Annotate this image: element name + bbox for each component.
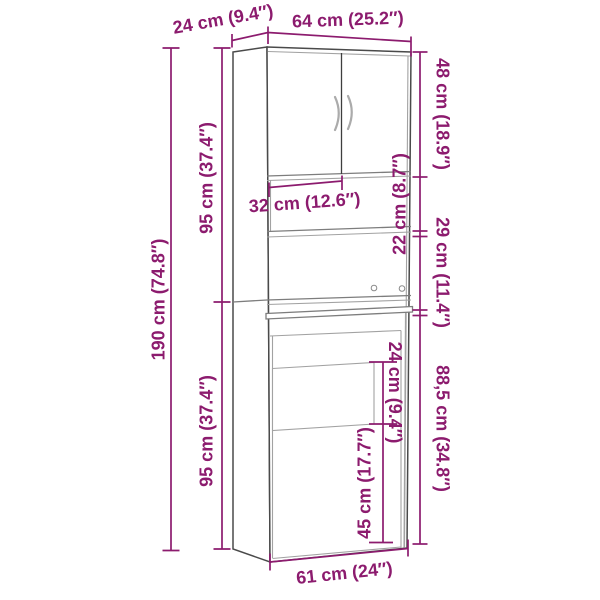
dim-label-depth: 24 cm (9.4″) xyxy=(171,0,275,37)
dim-label-middle-section: 29 cm (11.4″) xyxy=(433,217,453,328)
dim-label-total-width: 64 cm (25.2″) xyxy=(292,8,404,32)
cabinet-front-face xyxy=(267,47,411,562)
niche-back-rail xyxy=(273,363,375,431)
dimension-diagram-canvas: 24 cm (9.4″) 64 cm (25.2″) 48 cm (18.9″)… xyxy=(0,0,600,600)
dim-label-total-height: 190 cm (74.8″) xyxy=(149,239,169,361)
cabinet-drawing xyxy=(233,47,413,562)
dim-label-shelf-space: 22 cm (8.7″) xyxy=(390,153,410,255)
dim-label-top-section: 48 cm (18.9″) xyxy=(433,58,453,170)
dim-label-lower-height: 95 cm (37.4″) xyxy=(197,375,217,487)
cabinet-side-panel xyxy=(233,47,270,562)
dim-label-niche-lower: 45 cm (17.7″) xyxy=(355,427,375,539)
cabinet-dimension-diagram: 24 cm (9.4″) 64 cm (25.2″) 48 cm (18.9″)… xyxy=(0,0,600,600)
top-dimension-line xyxy=(232,33,411,42)
dim-label-niche-upper: 24 cm (9.4″) xyxy=(385,342,405,444)
dim-label-upper-height: 95 cm (37.4″) xyxy=(197,122,217,234)
dim-label-lower-section: 88,5 cm (34.8″) xyxy=(433,365,453,492)
dim-label-base-width: 61 cm (24″) xyxy=(295,558,393,588)
